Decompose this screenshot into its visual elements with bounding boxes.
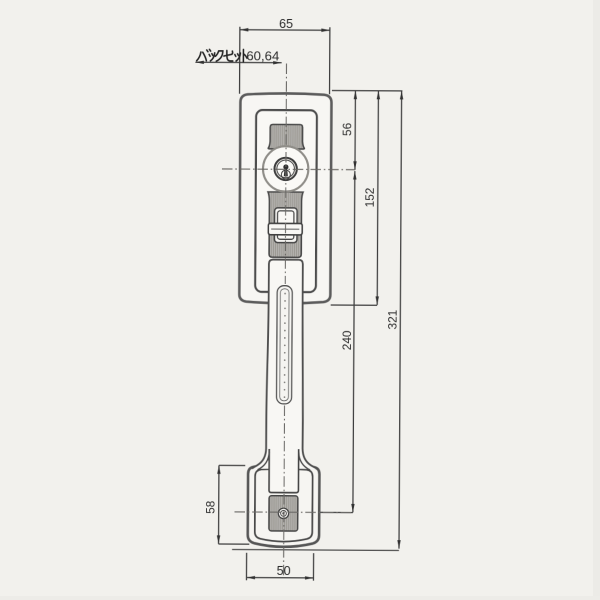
- svg-text:65: 65: [279, 17, 293, 31]
- svg-text:50: 50: [277, 564, 291, 578]
- svg-text:58: 58: [203, 500, 217, 514]
- svg-text:152: 152: [363, 188, 377, 208]
- svg-text:240: 240: [340, 330, 354, 350]
- svg-text:56: 56: [340, 122, 354, 136]
- svg-text:321: 321: [385, 310, 399, 330]
- svg-text:60,64: 60,64: [246, 48, 279, 63]
